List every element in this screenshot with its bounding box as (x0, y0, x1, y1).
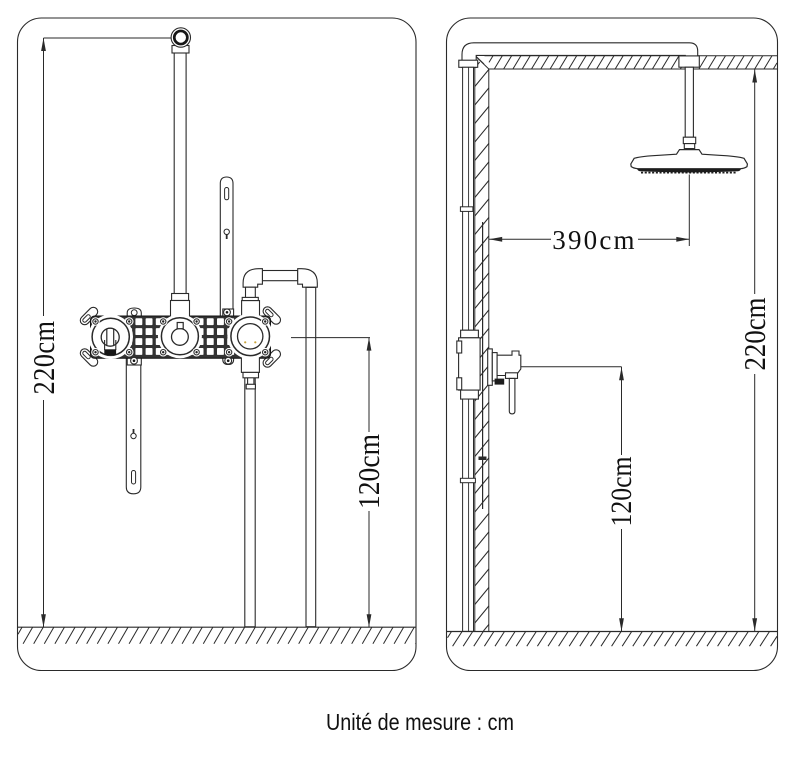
svg-text:Unité de mesure : cm: Unité de mesure : cm (326, 709, 514, 735)
svg-text:220cm: 220cm (26, 321, 61, 395)
svg-text:390cm: 390cm (552, 225, 637, 255)
svg-text:120cm: 120cm (351, 434, 386, 509)
svg-text:220cm: 220cm (737, 298, 772, 371)
svg-text:120cm: 120cm (605, 457, 638, 527)
